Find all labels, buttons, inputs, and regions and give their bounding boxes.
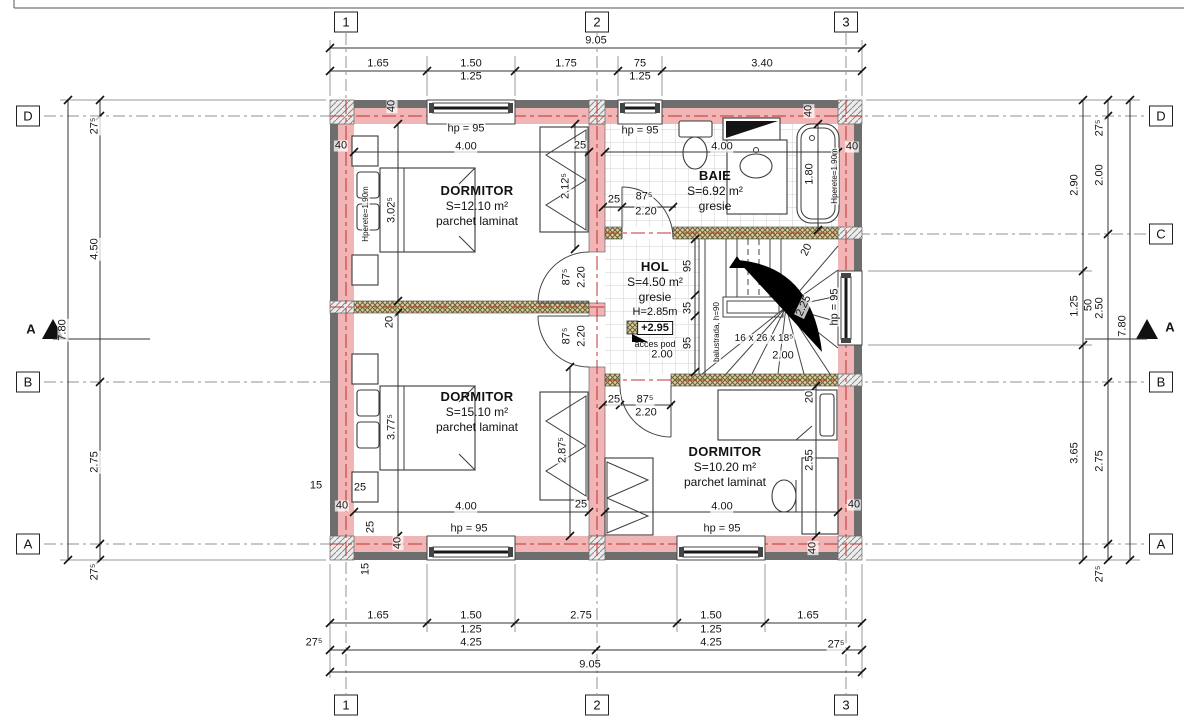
level-marker: +2.95 [637, 321, 673, 335]
dimension-label: 2.75 [90, 450, 101, 473]
dimension-label: 27⁵ [90, 117, 101, 136]
dimension-label: 3.77⁵ [387, 413, 398, 441]
dimension-label: 2.12⁵ [561, 172, 572, 200]
dimension-label: 7.80 [58, 318, 69, 341]
section-marker-label: A [25, 323, 36, 336]
dimension-label: 87⁵ [562, 327, 573, 346]
grid-bubble-2: 2 [585, 695, 609, 716]
shower-shelf [723, 118, 780, 140]
dimension-label: hp = 95 [449, 524, 488, 535]
dimension-label: 25 [574, 500, 588, 511]
room-label-dormitor-1: DORMITOR S=12.10 m² parchet laminat [436, 183, 518, 228]
dimension-label: 40 [845, 142, 859, 153]
room-area: S=6.92 m² [687, 184, 743, 198]
dimension-label: 95 [683, 336, 694, 350]
dimension-label: 1.50 [459, 611, 482, 622]
dimension-label: 2.20 [634, 207, 657, 218]
room-label-hol: HOL S=4.50 m² gresie H=2.85m +2.95 acces… [627, 259, 683, 349]
dimension-label: 40 [808, 541, 819, 555]
sheet-border [14, 0, 1184, 8]
dimension-label: 9.05 [584, 36, 607, 47]
dimension-label: 1.50 [459, 59, 482, 70]
room-finish: parchet laminat [684, 475, 766, 489]
room-label-dormitor-3: DORMITOR S=10.20 m² parchet laminat [684, 444, 766, 489]
dimension-label: 4.25 [459, 638, 482, 649]
dimension-label: 2.20 [577, 265, 588, 288]
dimension-label: 1.80 [805, 162, 816, 185]
grid-bubble-3: 3 [834, 12, 858, 33]
dimension-label: 25 [607, 395, 621, 406]
window-top-left [427, 100, 515, 124]
dimension-label: hp = 95 [446, 124, 485, 135]
grid-bubble-D: D [1149, 106, 1173, 127]
wardrobe-3 [605, 458, 653, 535]
window-bottom-right [677, 536, 765, 560]
dimension-label: 25 [573, 141, 587, 152]
dimension-label: 35 [683, 301, 694, 315]
grid-bubble-C: C [1149, 224, 1173, 245]
dimension-label: 25 [366, 520, 377, 534]
dimension-label: 4.00 [454, 142, 477, 153]
dimension-label: 1.50 [699, 611, 722, 622]
dimension-label: 25 [607, 195, 621, 206]
dimension-label: 95 [683, 259, 694, 273]
dimension-label: 2.20 [634, 408, 657, 419]
room-name: BAIE [687, 168, 743, 183]
dimension-label: hp = 95 [620, 126, 659, 137]
dimension-label: 15 [361, 562, 372, 576]
dimension-label: 27⁵ [1095, 119, 1106, 138]
grid-bubble-2: 2 [585, 12, 609, 33]
dimension-label: 4.00 [454, 502, 477, 513]
dimension-label: Hperete=1.90m [362, 185, 370, 242]
room-finish: gresie [627, 290, 683, 304]
dimension-label: 27⁵ [305, 638, 324, 649]
dimension-label: 40 [335, 501, 349, 512]
room-height: H=2.85m [627, 306, 683, 318]
dimension-label: 20 [385, 315, 396, 329]
room-finish: parchet laminat [436, 420, 518, 434]
dimension-label: hp = 95 [830, 287, 841, 326]
dimension-label: 2.90 [1070, 173, 1081, 196]
dimension-label: 1.25 [699, 625, 722, 636]
dimension-label: 40 [387, 99, 398, 113]
grid-bubble-A: A [16, 534, 40, 555]
dimension-label: 2.75 [569, 611, 592, 622]
dimension-label: 75 [633, 59, 647, 70]
dimension-label: hp = 95 [702, 524, 741, 535]
room-area: S=15.10 m² [436, 405, 518, 419]
chair [772, 480, 796, 512]
room-area: S=10.20 m² [684, 460, 766, 474]
dimension-label: 15 [309, 481, 323, 492]
stair-balustrade-label: balustrada, h=90 [713, 301, 721, 363]
window-bathroom [618, 100, 662, 124]
dimension-label: 2.87⁵ [558, 436, 569, 464]
dimension-label: 3.40 [750, 59, 773, 70]
dimension-label: 1.65 [366, 611, 389, 622]
dimension-label: 9.05 [578, 660, 601, 671]
grid-bubble-B: B [16, 372, 40, 393]
room-name: DORMITOR [436, 389, 518, 404]
dimension-label: 27⁵ [90, 563, 101, 582]
dimension-label: 87⁵ [635, 192, 654, 203]
dimension-label: 4.00 [710, 142, 733, 153]
dimension-label: 1.25 [459, 72, 482, 83]
grid-bubble-D: D [16, 106, 40, 127]
dimension-label: 40 [847, 500, 861, 511]
room-area: S=12.10 m² [436, 199, 518, 213]
dimension-label: 25 [353, 483, 367, 494]
dimension-label: 4.25 [699, 638, 722, 649]
dimension-label: 1.25 [628, 72, 651, 83]
room-label-dormitor-2: DORMITOR S=15.10 m² parchet laminat [436, 389, 518, 434]
dimension-label: 40 [804, 104, 815, 118]
dimension-label: 2.50 [1095, 296, 1106, 319]
dimension-label: 2.20 [577, 324, 588, 347]
dimension-label: 2.00 [771, 351, 794, 362]
dimension-label: 1.25 [459, 625, 482, 636]
dimension-label: 27⁵ [1095, 565, 1106, 584]
dimension-label: Hperete=1.90m [831, 147, 839, 204]
room-finish: gresie [687, 199, 743, 213]
stair-formula: 16 x 26 x 18⁵ [734, 334, 795, 344]
dimension-label: 40 [334, 141, 348, 152]
room-label-baie: BAIE S=6.92 m² gresie [687, 168, 743, 213]
grid-bubble-3: 3 [834, 695, 858, 716]
dimension-label: 4.00 [710, 502, 733, 513]
window-bottom-left [427, 536, 515, 560]
grid-bubble-1: 1 [334, 12, 358, 33]
dimension-label: 1.75 [554, 59, 577, 70]
dimension-label: 87⁵ [636, 395, 655, 406]
dimension-label: 2.00 [1095, 163, 1106, 186]
room-finish: parchet laminat [436, 214, 518, 228]
room-area: S=4.50 m² [627, 275, 683, 289]
floor-plan-page: DORMITOR S=12.10 m² parchet laminat BAIE… [0, 0, 1184, 720]
dimension-label: 3.02⁵ [387, 196, 398, 224]
window-stairs-right [838, 271, 862, 345]
dimension-label: 4.50 [90, 237, 101, 260]
dimension-label: 1.65 [366, 59, 389, 70]
dimension-label: 3.65 [1070, 441, 1081, 464]
room-name: DORMITOR [684, 444, 766, 459]
section-marker-label: A [1164, 321, 1175, 334]
dimension-label: 1.25 [1070, 294, 1081, 317]
room-name: DORMITOR [436, 183, 518, 198]
dimension-label: 40 [393, 536, 404, 550]
room-name: HOL [627, 259, 683, 274]
dimension-label: 2.75 [1095, 449, 1106, 472]
dimension-label: 2.55 [805, 448, 816, 471]
dimension-label: 2.00 [650, 350, 673, 361]
dimension-label: 1.65 [796, 611, 819, 622]
dimension-label: 27⁵ [827, 640, 846, 651]
dimension-label: 7.80 [1118, 314, 1129, 337]
grid-bubble-B: B [1149, 372, 1173, 393]
grid-bubble-1: 1 [334, 695, 358, 716]
dimension-label: 87⁵ [562, 268, 573, 287]
grid-bubble-A: A [1149, 534, 1173, 555]
dimension-label: 20 [805, 390, 816, 404]
bed-single [718, 390, 837, 440]
attic-access-note: acces pod [627, 339, 683, 349]
